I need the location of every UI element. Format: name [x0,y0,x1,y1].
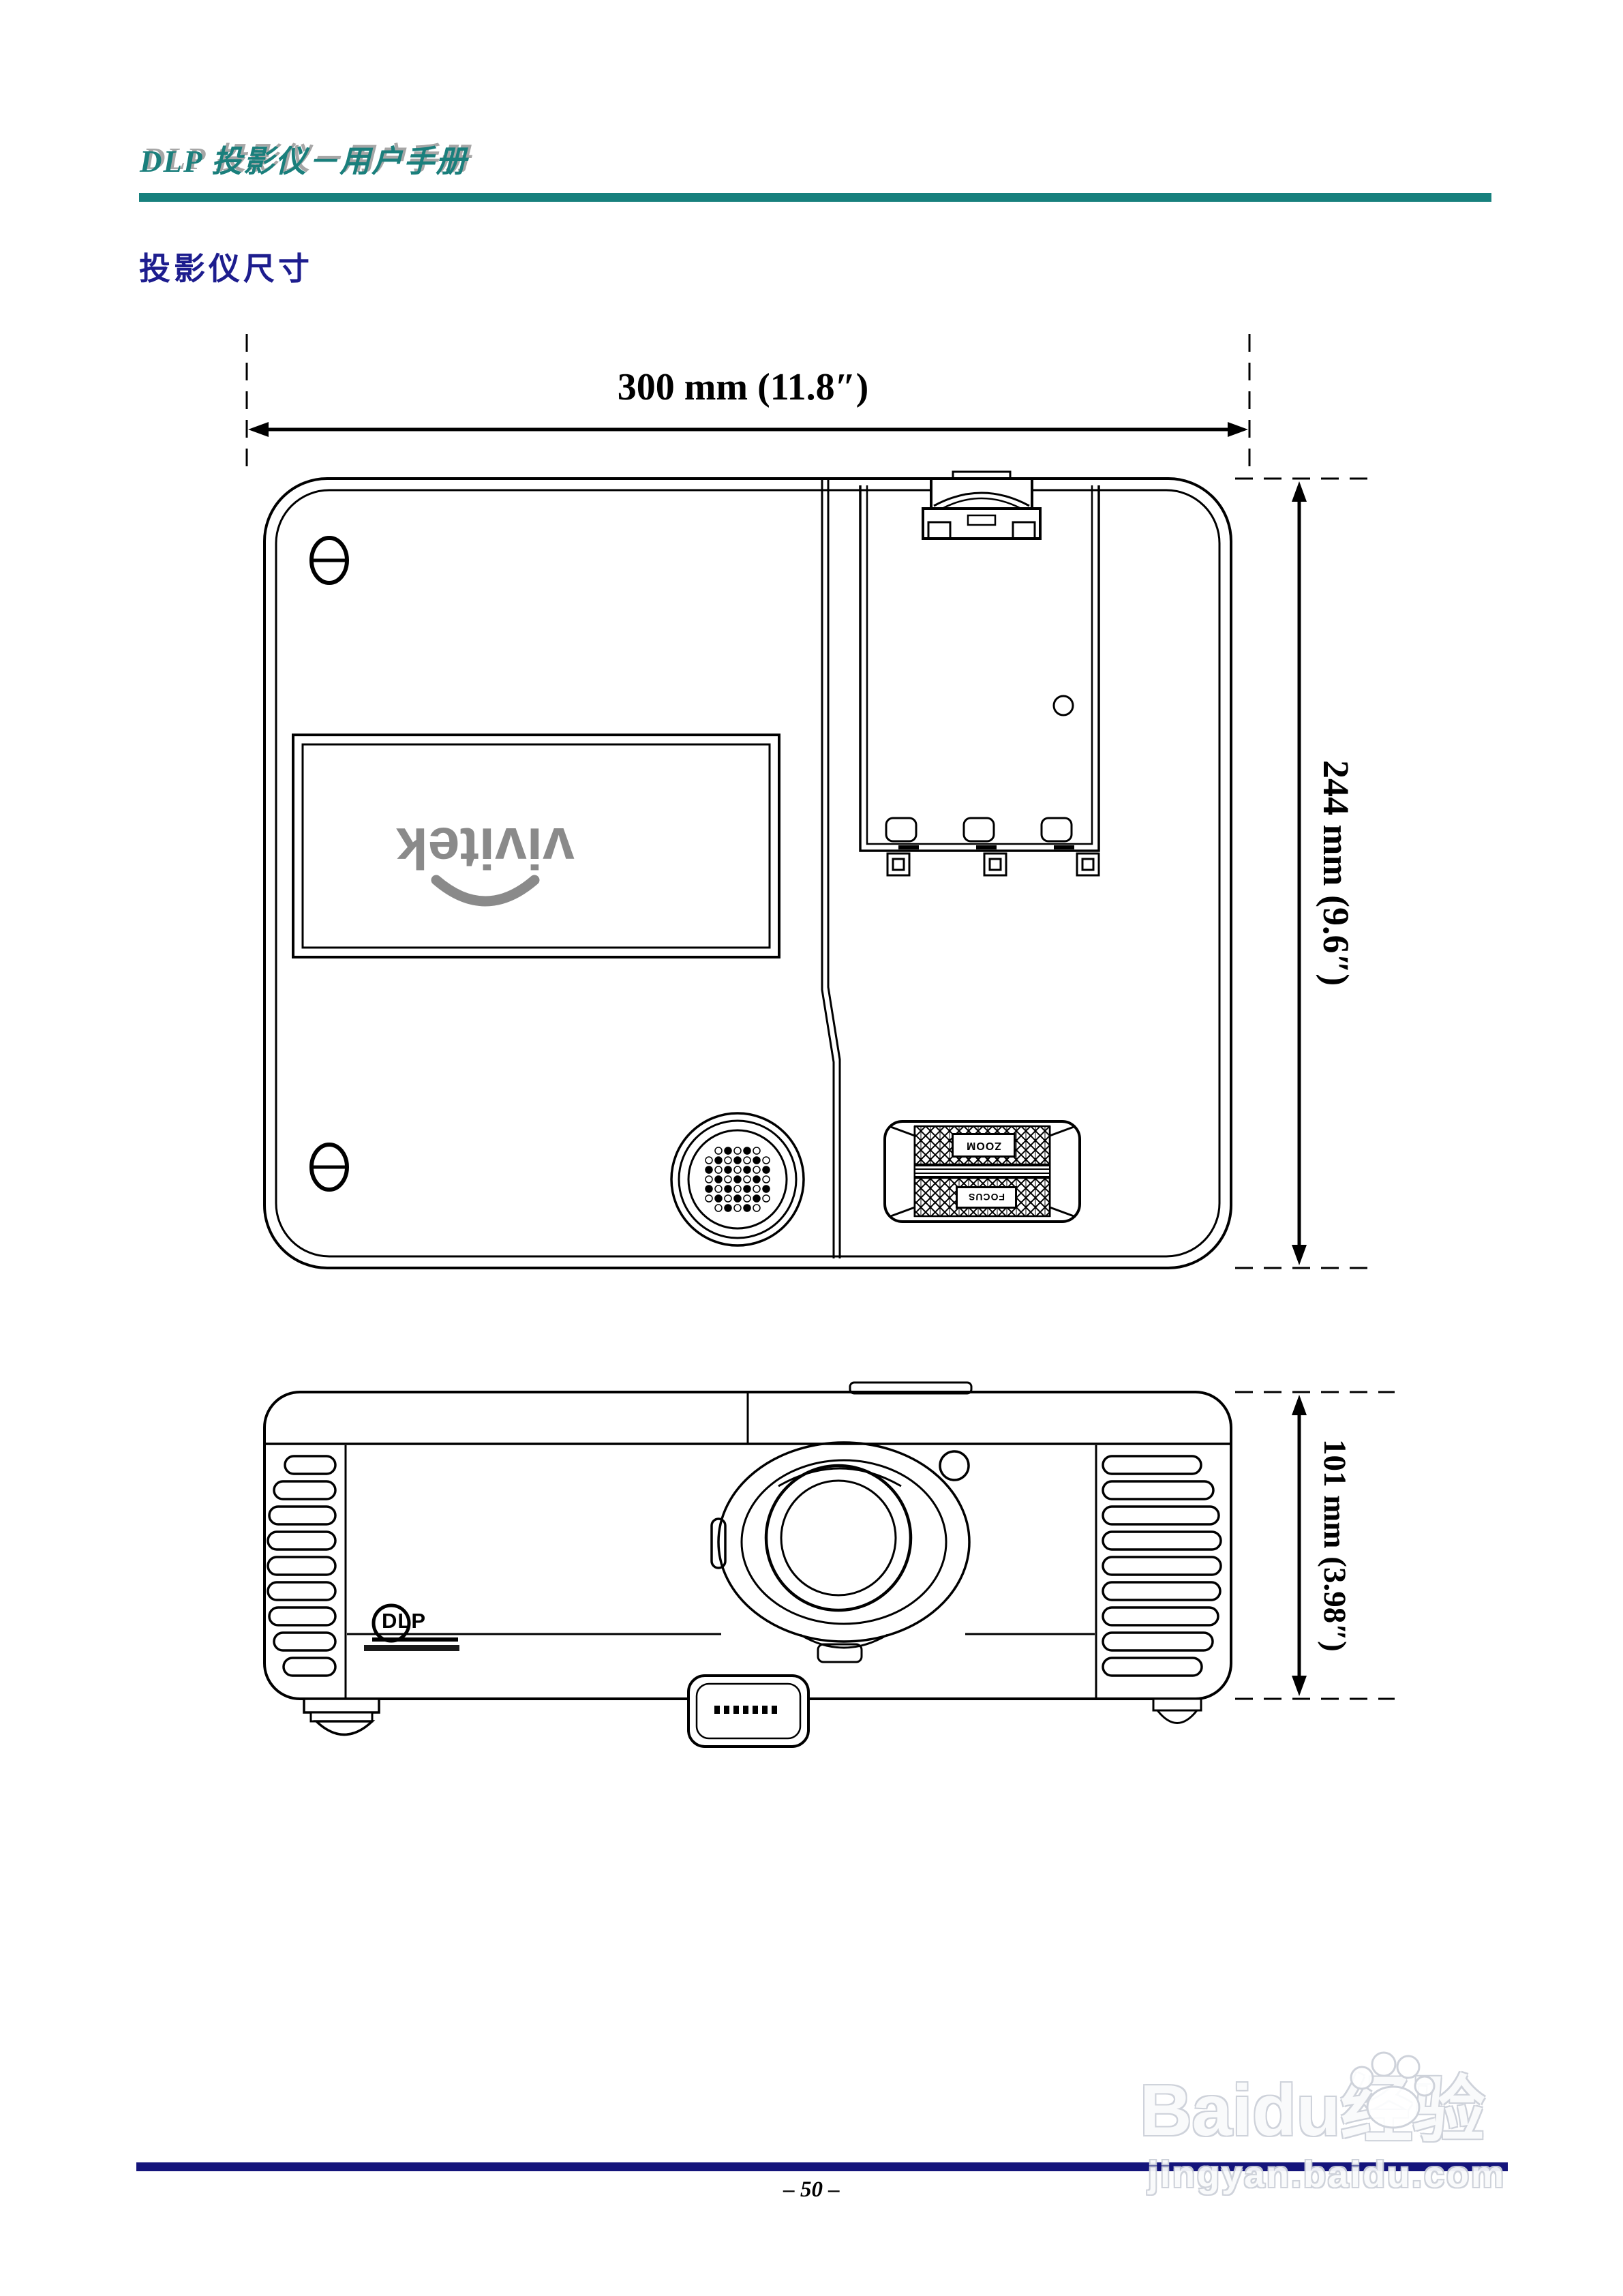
screw-icon [310,1145,348,1190]
width-dimension-label: 300 mm (11.8″) [436,365,1050,409]
speaker-grille [671,1113,804,1245]
lens-front [712,1442,969,1662]
focus-wheel-label: FOCUS [956,1186,1017,1209]
indicator-squares [888,854,1099,875]
technical-drawing [0,0,1623,2296]
vivitek-logo: vivitek [382,813,589,883]
right-vent [1096,1445,1221,1697]
depth-dimension-label: 244 mm (9.6″) [1316,479,1356,1268]
dlp-underline [372,1637,458,1642]
height-dimension-lines [1235,1392,1395,1699]
manual-page: DLP 投影仪－用户手册 投影仪尺寸 300 mm (11.8″) 244 mm… [0,0,1623,2296]
manual-title: DLP 投影仪－用户手册 [140,136,468,181]
page-number: – 50 – [0,2177,1623,2203]
body-seam-lines [822,479,840,1258]
dlp-logo-subtext [364,1645,459,1651]
dlp-logo-text: DLP [382,1609,426,1633]
page-title: 投影仪尺寸 [139,244,313,289]
top-view-drawing [247,334,1373,1268]
height-dimension-label: 101 mm (3.98″) [1316,1392,1354,1699]
footer-rule [136,2162,1508,2171]
front-view-drawing [264,1383,1395,1747]
projector-front-body [264,1383,1231,1699]
left-vent [268,1445,346,1697]
screw-icon [310,538,348,583]
lens-housing-top [923,472,1040,539]
zoom-wheel-label: ZOOM [952,1133,1016,1158]
feet [304,1676,1201,1747]
lamp-cover [860,485,1099,851]
lamp-screw-hole [1054,696,1073,715]
ir-sensor [940,1451,969,1480]
center-connector [688,1676,808,1747]
header-rule [139,193,1491,202]
